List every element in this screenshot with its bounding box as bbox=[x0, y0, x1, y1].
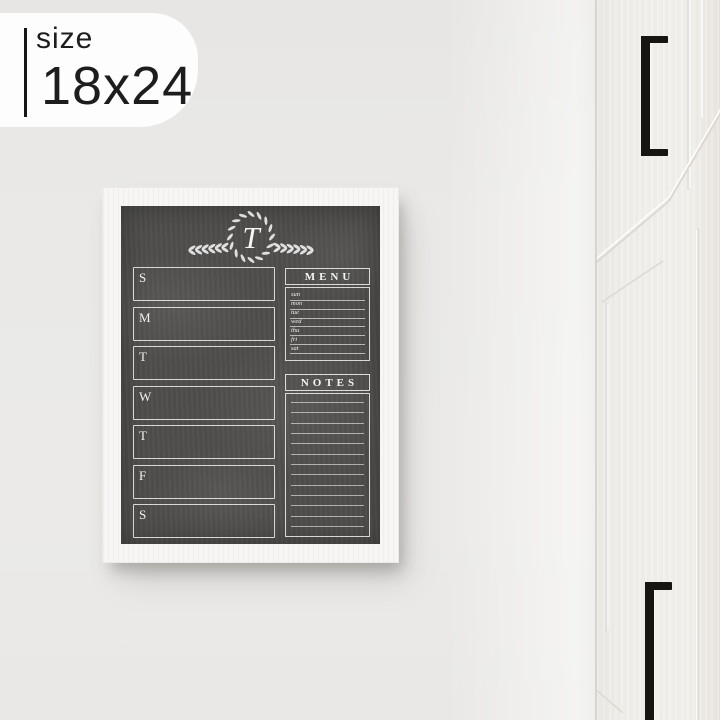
menu-day-label: mon bbox=[291, 301, 302, 308]
cabinet-panel-lines bbox=[597, 0, 720, 720]
size-value: 18x24 bbox=[41, 55, 193, 117]
menu-day-label: tue bbox=[291, 310, 299, 317]
day-letter: T bbox=[134, 426, 147, 444]
notes-lines bbox=[285, 393, 370, 537]
menu-lines: sun mon tue wed thu fri sat bbox=[285, 287, 370, 361]
note-line bbox=[291, 442, 364, 444]
wreath-monogram-icon: T bbox=[176, 208, 326, 272]
note-line bbox=[291, 422, 364, 424]
cabinet-handle-upper bbox=[641, 36, 650, 156]
day-letter: F bbox=[134, 466, 146, 484]
menu-day-label: wed bbox=[291, 319, 301, 326]
chalkboard: T S M T W T F S MENU sun mon tue wed bbox=[121, 206, 380, 544]
note-line bbox=[291, 411, 364, 413]
note-line bbox=[291, 432, 364, 434]
menu-day-label: sat bbox=[291, 346, 299, 353]
note-line bbox=[291, 463, 364, 465]
notes-title: NOTES bbox=[285, 374, 370, 391]
size-badge: size 18x24 bbox=[0, 13, 198, 127]
day-boxes: S M T W T F S bbox=[133, 267, 275, 538]
planner-right-column: MENU sun mon tue wed thu fri sat NOTES bbox=[285, 268, 370, 537]
note-line bbox=[291, 473, 364, 475]
menu-row: wed bbox=[290, 319, 365, 328]
day-box-sat: S bbox=[133, 504, 275, 538]
day-box-wed: W bbox=[133, 386, 275, 420]
notes-section: NOTES bbox=[285, 374, 370, 537]
note-line bbox=[291, 401, 364, 403]
note-line bbox=[291, 525, 364, 527]
menu-title: MENU bbox=[285, 268, 370, 285]
day-box-fri: F bbox=[133, 465, 275, 499]
day-letter: M bbox=[134, 308, 151, 326]
day-box-sun: S bbox=[133, 267, 275, 301]
menu-day-label: thu bbox=[291, 328, 299, 335]
note-line bbox=[291, 484, 364, 486]
menu-section: MENU sun mon tue wed thu fri sat bbox=[285, 268, 370, 361]
note-line bbox=[291, 504, 364, 506]
day-letter: T bbox=[134, 347, 147, 365]
cabinet-door bbox=[595, 0, 720, 720]
badge-divider bbox=[24, 28, 27, 117]
monogram-letter: T bbox=[242, 220, 262, 255]
product-photo: size 18x24 T S M T W T F S MENU bbox=[0, 0, 720, 720]
note-line bbox=[291, 515, 364, 517]
menu-row: mon bbox=[290, 301, 365, 310]
menu-row: thu bbox=[290, 327, 365, 336]
menu-row: fri bbox=[290, 336, 365, 345]
day-letter: W bbox=[134, 387, 151, 405]
menu-day-label: sun bbox=[291, 292, 300, 299]
day-letter: S bbox=[134, 505, 146, 523]
menu-row: sat bbox=[290, 345, 365, 354]
menu-day-label: fri bbox=[291, 337, 297, 344]
planner-frame: T S M T W T F S MENU sun mon tue wed bbox=[103, 188, 398, 562]
day-box-tue: T bbox=[133, 346, 275, 380]
note-line bbox=[291, 494, 364, 496]
menu-row: tue bbox=[290, 310, 365, 319]
day-letter: S bbox=[134, 268, 146, 286]
cabinet-handle-lower bbox=[645, 582, 654, 720]
day-box-mon: M bbox=[133, 307, 275, 341]
size-label: size bbox=[36, 22, 93, 56]
note-line bbox=[291, 453, 364, 455]
day-box-thu: T bbox=[133, 425, 275, 459]
